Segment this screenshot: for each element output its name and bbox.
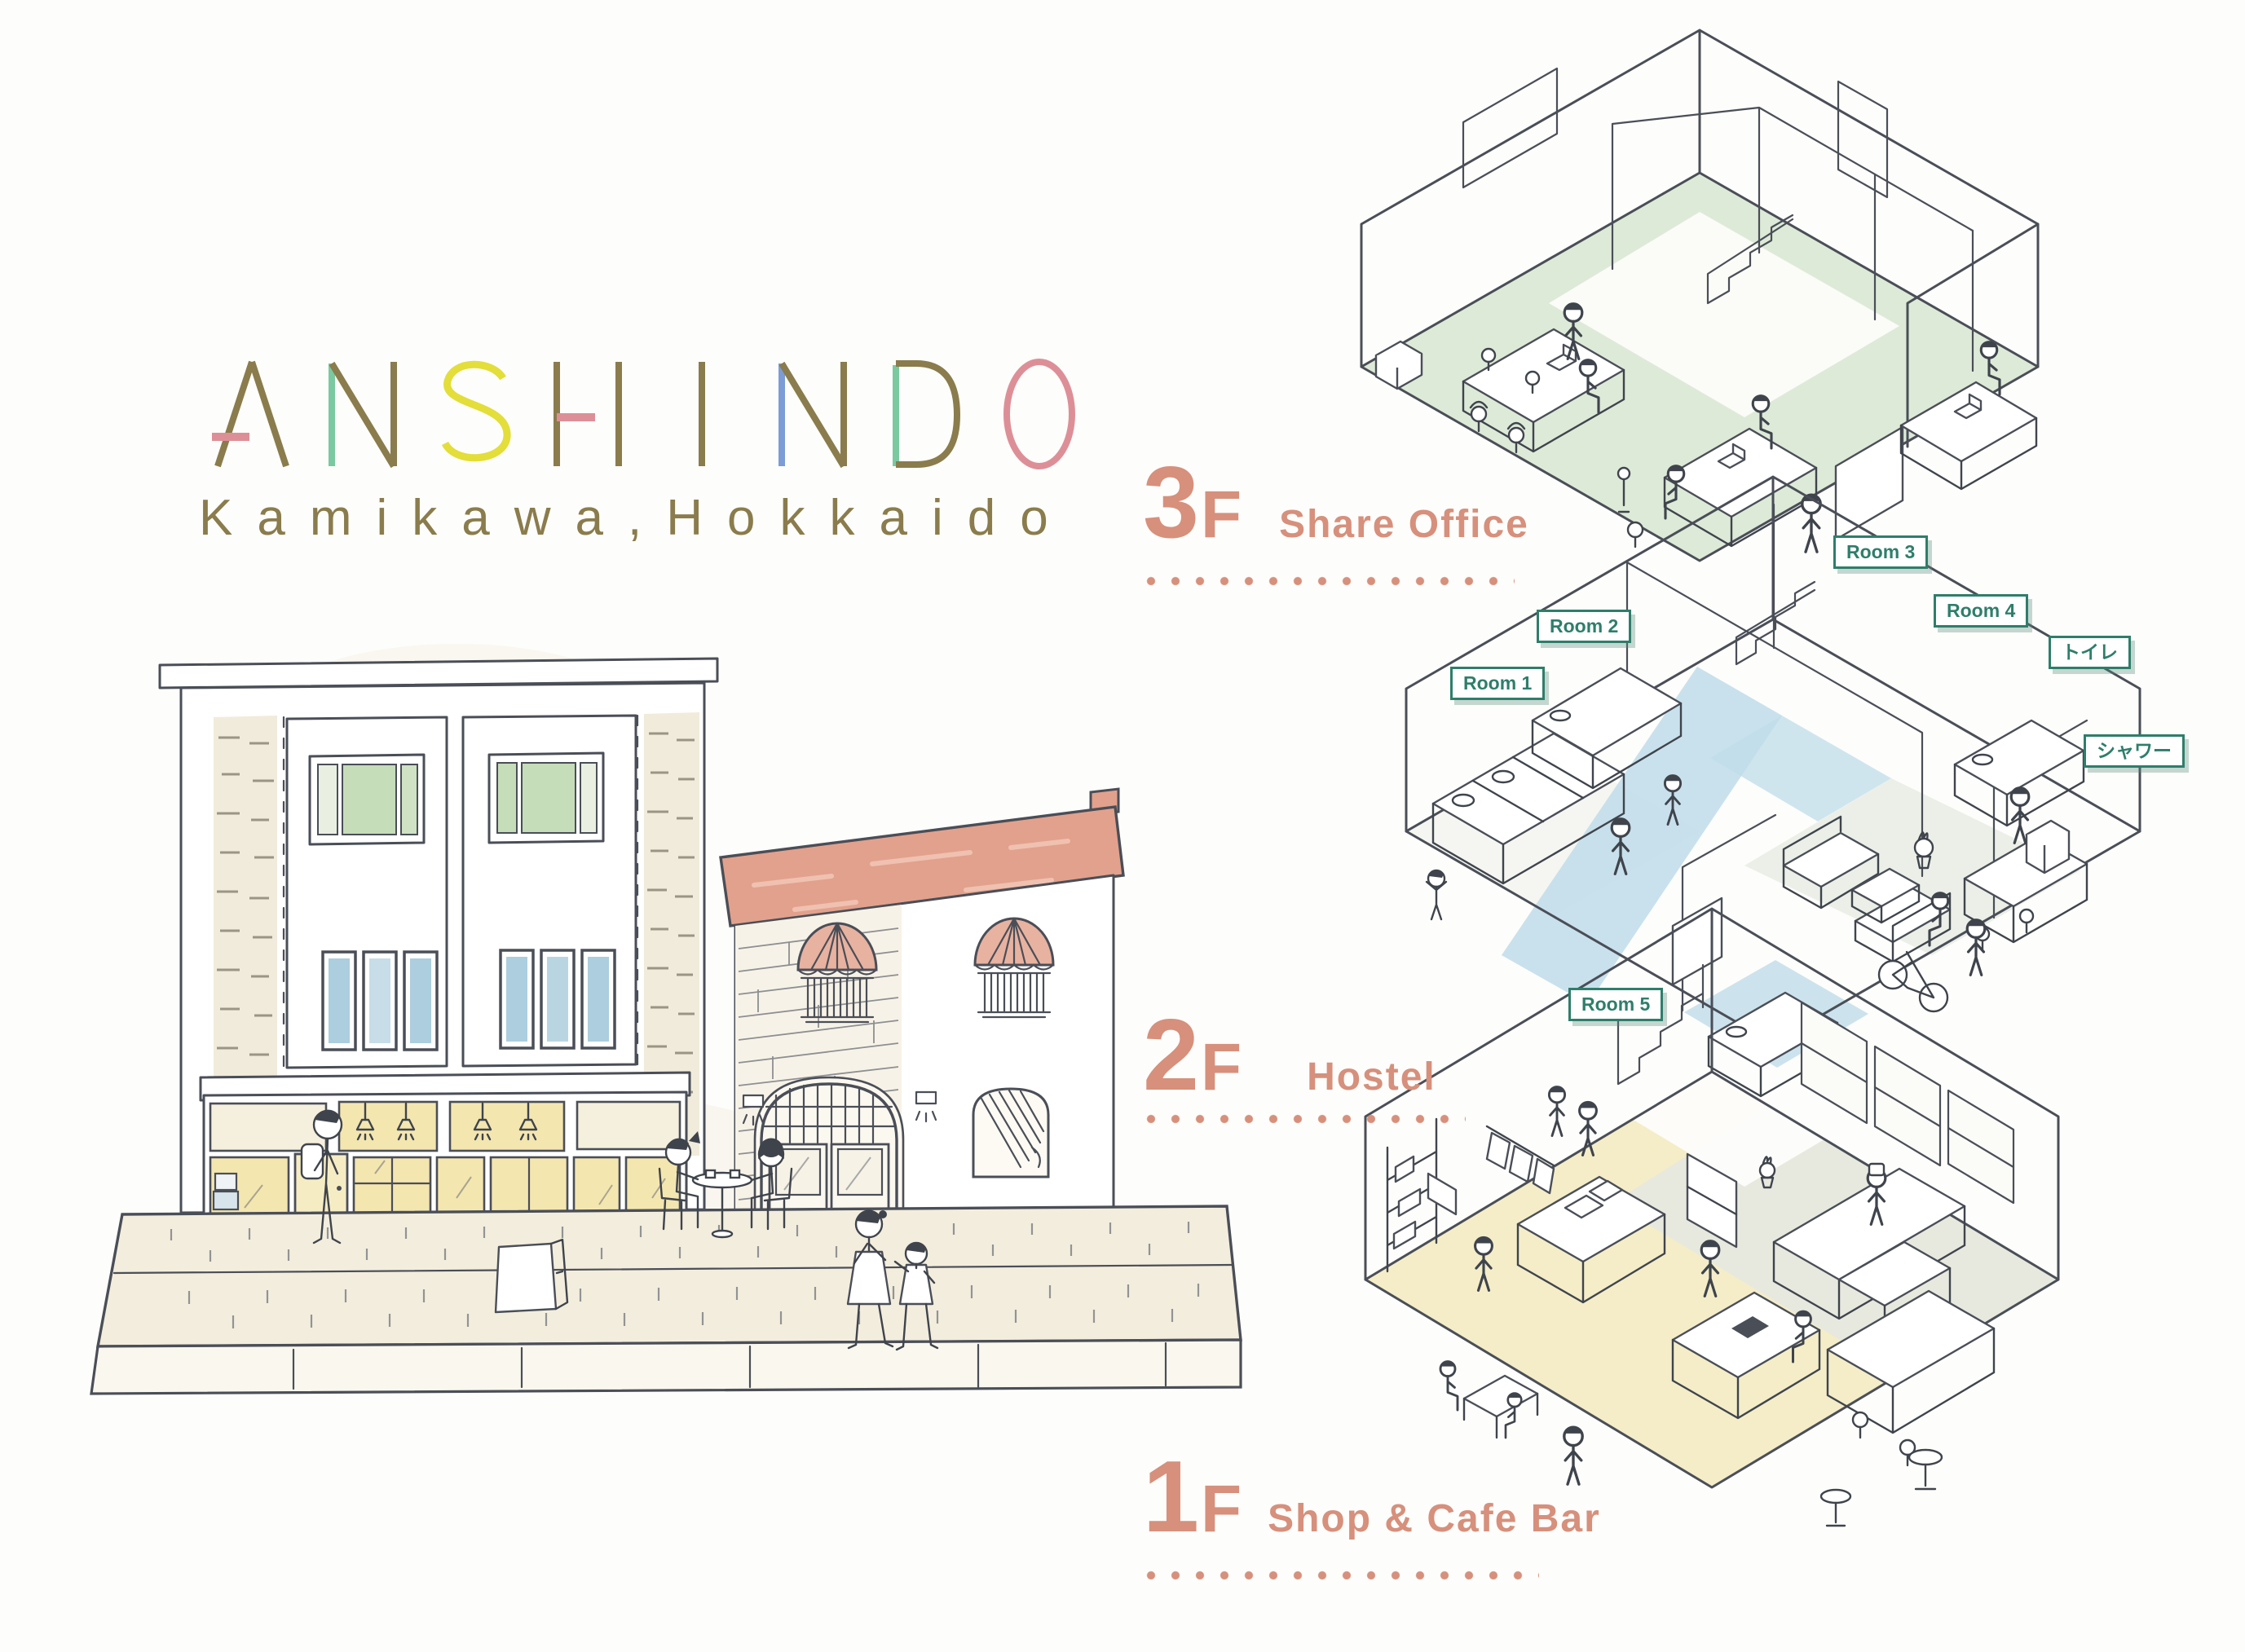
room-tag-shower: シャワー <box>2084 734 2185 768</box>
boardwalk <box>91 1206 1241 1394</box>
floor-1f-diagram <box>1365 909 2058 1526</box>
room-tag-room3: Room 3 <box>1833 535 1928 569</box>
floor-label-1f: 1F Shop & Cafe Bar <box>1143 1452 1601 1548</box>
floor-2f-number: 2 <box>1143 1011 1201 1102</box>
floor-3f-name: Share Office <box>1279 502 1529 547</box>
room-tag-toilet: トイレ <box>2049 636 2131 669</box>
floor-2f-diagram <box>1406 477 2140 1096</box>
floor-3f-suffix: F <box>1201 477 1242 553</box>
room-tag-room4: Room 4 <box>1934 594 2028 628</box>
room-tag-room1: Room 1 <box>1450 667 1545 700</box>
floor-3f-dotted-rule <box>1146 575 1515 586</box>
floor-1f-dotted-rule <box>1146 1570 1539 1580</box>
poster: ANSHINDO Kamikawa, Hokkaido floor guide … <box>0 0 2245 1652</box>
floor-label-2f: 2F Hostel <box>1143 1011 1436 1106</box>
floor-1f-suffix: F <box>1201 1471 1242 1548</box>
room-tag-room5: Room 5 <box>1568 988 1663 1021</box>
room-tag-room2: Room 2 <box>1537 610 1631 643</box>
floor-1f-name: Shop & Cafe Bar <box>1268 1496 1601 1541</box>
left-building <box>160 659 717 1224</box>
floor-2f-dotted-rule <box>1146 1113 1466 1124</box>
storefront <box>201 1073 690 1224</box>
floor-1f-number: 1 <box>1143 1452 1201 1544</box>
building-illustration <box>91 644 1241 1394</box>
scene-art <box>0 0 2245 1652</box>
curtain-window <box>973 1089 1048 1177</box>
floor-2f-name: Hostel <box>1307 1055 1436 1099</box>
floor-3f-number: 3 <box>1143 458 1201 549</box>
floor-2f-suffix: F <box>1201 1029 1242 1106</box>
floor-label-3f: 3F Share Office <box>1143 458 1529 553</box>
